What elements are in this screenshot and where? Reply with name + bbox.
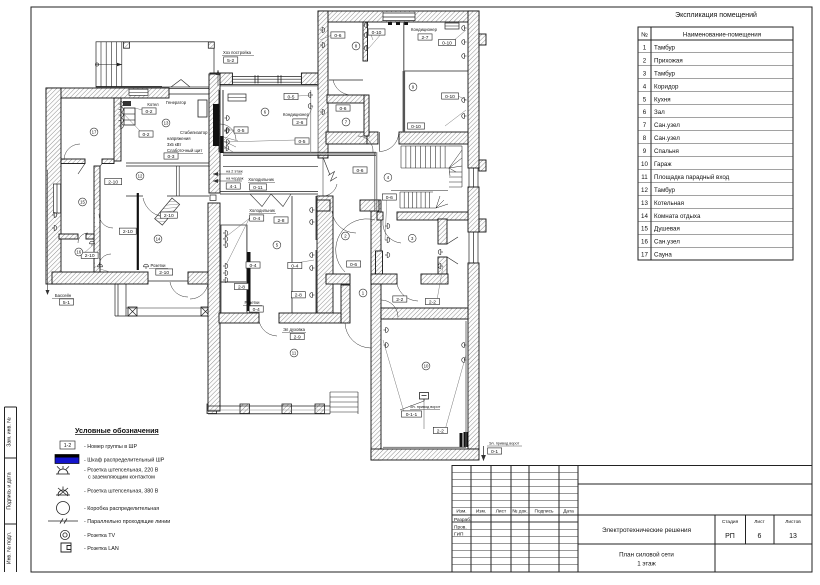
svg-text:15: 15 <box>80 200 85 205</box>
svg-text:Котел: Котел <box>147 102 159 107</box>
svg-text:12: 12 <box>138 174 143 179</box>
svg-text:1: 1 <box>643 45 647 52</box>
svg-text:0-10: 0-10 <box>442 40 452 46</box>
svg-text:0-4: 0-4 <box>253 307 260 313</box>
svg-text:Стадия: Стадия <box>722 519 739 525</box>
svg-text:Кондиционер: Кондиционер <box>283 112 310 117</box>
svg-text:0-5: 0-5 <box>287 94 294 100</box>
svg-text:Зал: Зал <box>654 109 665 116</box>
svg-text:13: 13 <box>164 121 169 126</box>
svg-text:2-9: 2-9 <box>294 334 301 340</box>
svg-text:0-2: 0-2 <box>142 132 149 138</box>
svg-text:2-6: 2-6 <box>296 120 303 126</box>
svg-text:0-1-1: 0-1-1 <box>406 412 418 418</box>
svg-text:0-6: 0-6 <box>386 195 393 201</box>
svg-text:Прихожая: Прихожая <box>654 57 683 64</box>
svg-text:Душевая: Душевая <box>654 226 680 233</box>
svg-text:на чердак: на чердак <box>226 177 244 181</box>
svg-text:- Розетка штепсельная, 220 В: - Розетка штепсельная, 220 В <box>84 468 159 474</box>
svg-text:Коридор: Коридор <box>654 83 679 90</box>
svg-text:Изм.: Изм. <box>456 509 466 515</box>
svg-text:Эл духовка: Эл духовка <box>283 327 306 332</box>
svg-text:0-6: 0-6 <box>339 106 346 112</box>
svg-text:Сан.узел: Сан.узел <box>654 135 680 142</box>
svg-text:Комната отдыха: Комната отдыха <box>654 213 701 220</box>
svg-text:Лист: Лист <box>496 509 507 515</box>
svg-text:Кухня: Кухня <box>654 96 671 103</box>
svg-text:2-7: 2-7 <box>421 35 428 41</box>
svg-text:напряжения: напряжения <box>167 136 191 141</box>
svg-text:Холодильник: Холодильник <box>248 177 274 182</box>
svg-text:4-1: 4-1 <box>230 184 237 190</box>
svg-text:5: 5 <box>643 96 647 103</box>
svg-text:2-10: 2-10 <box>159 270 169 276</box>
svg-text:Эл. привод ворот: Эл. привод ворот <box>410 405 441 409</box>
svg-text:8: 8 <box>643 135 647 142</box>
svg-text:Хоз постройка: Хоз постройка <box>223 50 252 55</box>
svg-text:5-2: 5-2 <box>227 58 234 64</box>
svg-text:Лист: Лист <box>754 519 765 525</box>
svg-text:Электротехнические решения: Электротехнические решения <box>602 527 692 534</box>
svg-text:2-10: 2-10 <box>164 213 174 219</box>
svg-text:Площадка парадный вход: Площадка парадный вход <box>654 174 730 181</box>
svg-text:- Розетка TV: - Розетка TV <box>84 533 116 539</box>
svg-text:Спальня: Спальня <box>654 148 679 155</box>
svg-text:Экспликация помещений: Экспликация помещений <box>675 11 757 19</box>
svg-text:13: 13 <box>789 533 797 540</box>
svg-text:- Розетка штепсельная, 380 В: - Розетка штепсельная, 380 В <box>84 489 159 495</box>
svg-text:0-6: 0-6 <box>350 262 357 268</box>
svg-text:0-3: 0-3 <box>167 154 174 160</box>
svg-text:16: 16 <box>641 239 648 246</box>
svg-text:Подпись: Подпись <box>535 509 554 515</box>
svg-text:0-2: 0-2 <box>145 109 152 115</box>
svg-text:16: 16 <box>76 250 81 255</box>
svg-text:2-2: 2-2 <box>429 299 436 305</box>
svg-text:2-10: 2-10 <box>123 229 133 235</box>
svg-text:Розетки: Розетки <box>244 300 260 305</box>
svg-text:2-2: 2-2 <box>396 297 403 303</box>
svg-text:1-2: 1-2 <box>64 443 72 449</box>
svg-text:14: 14 <box>641 213 648 220</box>
svg-text:Сауна: Сауна <box>654 252 672 259</box>
svg-text:0-1: 0-1 <box>491 449 498 455</box>
svg-text:4: 4 <box>643 83 647 90</box>
svg-text:Пров.: Пров. <box>454 524 467 530</box>
svg-text:Слаботочный щит: Слаботочный щит <box>167 148 202 153</box>
svg-text:13: 13 <box>641 200 648 207</box>
svg-text:Тамбур: Тамбур <box>654 187 676 194</box>
svg-text:2-8: 2-8 <box>277 218 284 224</box>
svg-text:Стабилизатор: Стабилизатор <box>180 130 208 135</box>
svg-text:Тамбур: Тамбур <box>654 70 676 77</box>
svg-text:2-8: 2-8 <box>295 293 302 299</box>
svg-text:ГИП: ГИП <box>454 532 464 538</box>
svg-text:Холодильник: Холодильник <box>249 208 275 213</box>
svg-text:7: 7 <box>643 122 647 129</box>
svg-text:Эл. привод ворот: Эл. привод ворот <box>489 442 520 446</box>
svg-text:11: 11 <box>292 351 297 356</box>
svg-text:Условные обозначения: Условные обозначения <box>75 426 159 435</box>
svg-text:Тамбур: Тамбур <box>654 45 676 52</box>
svg-text:- Номер группы в ШР: - Номер группы в ШР <box>84 444 137 450</box>
svg-text:с заземляющим контактом: с заземляющим контактом <box>88 475 155 481</box>
svg-text:6: 6 <box>758 533 762 540</box>
svg-text:0-10: 0-10 <box>445 94 455 100</box>
svg-text:№ док.: № док. <box>512 509 527 515</box>
svg-text:6: 6 <box>643 109 647 116</box>
svg-text:Разраб.: Разраб. <box>454 517 471 523</box>
svg-text:№: № <box>641 32 648 39</box>
svg-text:Подпись и дата: Подпись и дата <box>7 472 13 509</box>
svg-text:Сан.узел: Сан.узел <box>654 122 680 129</box>
svg-text:17: 17 <box>92 130 97 135</box>
svg-text:0-10: 0-10 <box>411 124 421 130</box>
svg-text:3х5 кВт: 3х5 кВт <box>167 142 181 147</box>
svg-text:0-5: 0-5 <box>237 128 244 134</box>
svg-text:Розетки: Розетки <box>150 263 166 268</box>
svg-text:0-4: 0-4 <box>253 216 260 222</box>
svg-text:Дата: Дата <box>563 509 574 515</box>
svg-text:Кондиционер: Кондиционер <box>411 27 438 32</box>
svg-text:15: 15 <box>641 226 648 233</box>
svg-text:Зам. инв. №: Зам. инв. № <box>7 417 13 447</box>
svg-text:Инв. № подл.: Инв. № подл. <box>7 532 13 564</box>
svg-text:Сан.узел: Сан.узел <box>654 239 680 246</box>
svg-text:План силовой сети: План силовой сети <box>619 552 674 559</box>
svg-text:Изм.: Изм. <box>476 509 486 515</box>
svg-text:Наименование-помещения: Наименование-помещения <box>683 32 761 39</box>
svg-text:Гараж: Гараж <box>654 161 672 168</box>
svg-text:10: 10 <box>424 364 429 369</box>
svg-text:2: 2 <box>643 57 647 64</box>
svg-text:Бассейн: Бассейн <box>55 293 72 298</box>
svg-text:- Шкаф распределительный ШР: - Шкаф распределительный ШР <box>84 457 165 464</box>
svg-text:17: 17 <box>641 252 648 259</box>
svg-text:2-10: 2-10 <box>108 179 118 185</box>
svg-text:на 2 этаж: на 2 этаж <box>226 170 243 174</box>
svg-text:0-10: 0-10 <box>372 30 382 36</box>
svg-text:10: 10 <box>641 161 648 168</box>
svg-text:0-6: 0-6 <box>356 168 363 174</box>
svg-text:1 этаж: 1 этаж <box>637 561 656 568</box>
svg-text:11: 11 <box>641 174 648 181</box>
svg-text:Котельная: Котельная <box>654 200 684 207</box>
svg-text:2-10: 2-10 <box>85 253 95 259</box>
svg-text:0-6: 0-6 <box>334 33 341 39</box>
svg-text:0-5: 0-5 <box>298 139 305 145</box>
svg-text:- Розетка LAN: - Розетка LAN <box>84 546 119 552</box>
svg-text:0-11: 0-11 <box>253 185 263 191</box>
svg-text:- Параллельно проходящие линии: - Параллельно проходящие линии <box>84 519 170 525</box>
svg-text:12: 12 <box>641 187 648 194</box>
svg-text:2-2: 2-2 <box>437 428 444 434</box>
svg-text:9: 9 <box>643 148 647 155</box>
svg-text:- Коробка распределительная: - Коробка распределительная <box>84 506 159 512</box>
svg-text:2-8: 2-8 <box>238 284 245 290</box>
svg-text:0-4: 0-4 <box>291 263 298 269</box>
svg-text:14: 14 <box>156 237 161 242</box>
svg-text:Листов: Листов <box>785 519 801 525</box>
svg-text:РП: РП <box>725 533 735 540</box>
svg-text:3: 3 <box>643 70 647 77</box>
svg-text:5-1: 5-1 <box>63 300 70 306</box>
svg-text:Генератор: Генератор <box>166 100 187 105</box>
svg-text:0-4: 0-4 <box>249 263 256 269</box>
